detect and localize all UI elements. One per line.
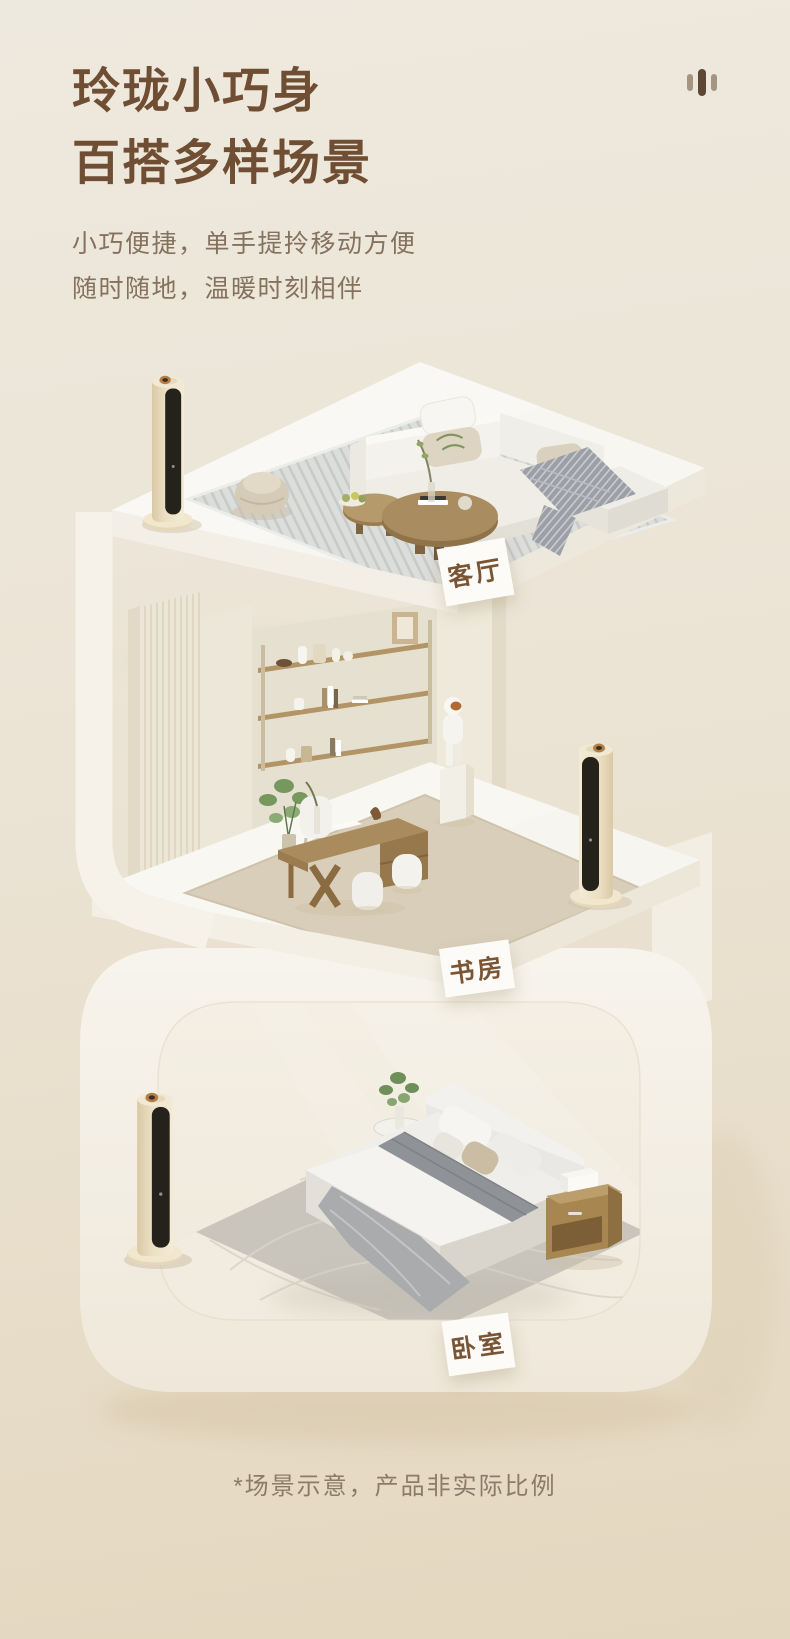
- disclaimer-note: *场景示意，产品非实际比例: [0, 1466, 790, 1501]
- scene-label-text: 客厅: [445, 549, 506, 594]
- scene-label-text: 书房: [447, 947, 507, 990]
- fluted-panel-side: [128, 606, 140, 893]
- scene-label-bedroom: 卧室: [441, 1313, 515, 1377]
- product-showcase-page: 玲珑小巧身 百搭多样场景 小巧便捷，单手提拎移动方便 随时随地，温暖时刻相伴: [0, 0, 790, 1639]
- isometric-scene: [0, 0, 790, 1639]
- scene-label-text: 卧室: [448, 1323, 508, 1366]
- scene-label-study: 书房: [439, 939, 515, 997]
- fluted-panel: [140, 592, 200, 893]
- scene-label-living-room: 客厅: [436, 537, 514, 606]
- living-room-scene: [112, 362, 705, 614]
